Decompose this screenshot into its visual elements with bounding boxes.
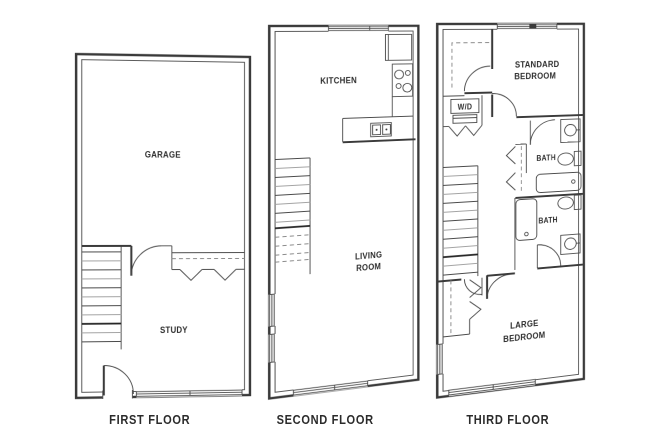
room-label-standard-bedroom: STANDARD bbox=[515, 59, 560, 70]
room-label-standard-bedroom-2: BEDROOM bbox=[514, 70, 556, 81]
refrigerator bbox=[385, 34, 411, 60]
floorplan-canvas: GARAGE STUDY bbox=[0, 0, 660, 445]
floor-plan-second: KITCHEN LIVING ROOM bbox=[265, 22, 424, 403]
landing-door-arc bbox=[464, 66, 492, 93]
stair-opening-dashed bbox=[452, 29, 492, 88]
kitchen-counter bbox=[343, 96, 416, 142]
entry-door-arc bbox=[102, 365, 133, 399]
bedroom-door-arc bbox=[492, 91, 583, 118]
window-left-lower bbox=[269, 334, 276, 363]
staircase bbox=[82, 246, 121, 350]
exterior-walls bbox=[76, 54, 250, 398]
bathtub bbox=[516, 199, 537, 241]
stair-door-arc bbox=[438, 278, 482, 300]
bathtub bbox=[536, 172, 581, 193]
kitchen-sink bbox=[371, 123, 392, 137]
bedroom-closet-bifold bbox=[443, 278, 481, 337]
hall-closet-bifold bbox=[506, 144, 526, 193]
toilet bbox=[558, 195, 581, 211]
room-label-living-2: ROOM bbox=[356, 261, 381, 273]
range-cooktop bbox=[392, 64, 412, 97]
room-label-study: STUDY bbox=[160, 324, 188, 335]
closet-with-rod bbox=[172, 246, 245, 281]
room-label-large-bedroom-2: BEDROOM bbox=[503, 329, 545, 344]
sink bbox=[561, 234, 580, 255]
floor-plan-third: W/D bbox=[433, 20, 589, 403]
room-label-living: LIVING bbox=[355, 249, 382, 261]
room-label-bath-lower: BATH bbox=[538, 215, 557, 226]
window-top bbox=[497, 23, 557, 30]
staircase bbox=[443, 166, 478, 279]
room-label-bath-upper: BATH bbox=[536, 153, 555, 163]
room-label-garage: GARAGE bbox=[145, 149, 181, 160]
large-bedroom-door-arc bbox=[487, 273, 515, 299]
floor-plan-first: GARAGE STUDY bbox=[72, 50, 256, 402]
window-left bbox=[436, 344, 443, 375]
floor-caption-second: SECOND FLOOR bbox=[250, 412, 400, 427]
bath-lower bbox=[515, 194, 583, 271]
staircase bbox=[275, 158, 310, 277]
sink bbox=[561, 119, 580, 143]
washer-dryer-closet: W/D bbox=[443, 95, 482, 136]
window-left-upper bbox=[269, 294, 276, 327]
room-label-large-bedroom: LARGE bbox=[510, 318, 538, 331]
room-label-kitchen: KITCHEN bbox=[320, 75, 357, 86]
floor-caption-first: FIRST FLOOR bbox=[75, 412, 225, 427]
toilet bbox=[558, 151, 581, 166]
window-bottom bbox=[293, 380, 367, 396]
window-top bbox=[329, 25, 389, 32]
floor-caption-third: THIRD FLOOR bbox=[433, 412, 583, 427]
interior-door-arc bbox=[131, 246, 161, 276]
washer-dryer-label: W/D bbox=[458, 102, 473, 112]
